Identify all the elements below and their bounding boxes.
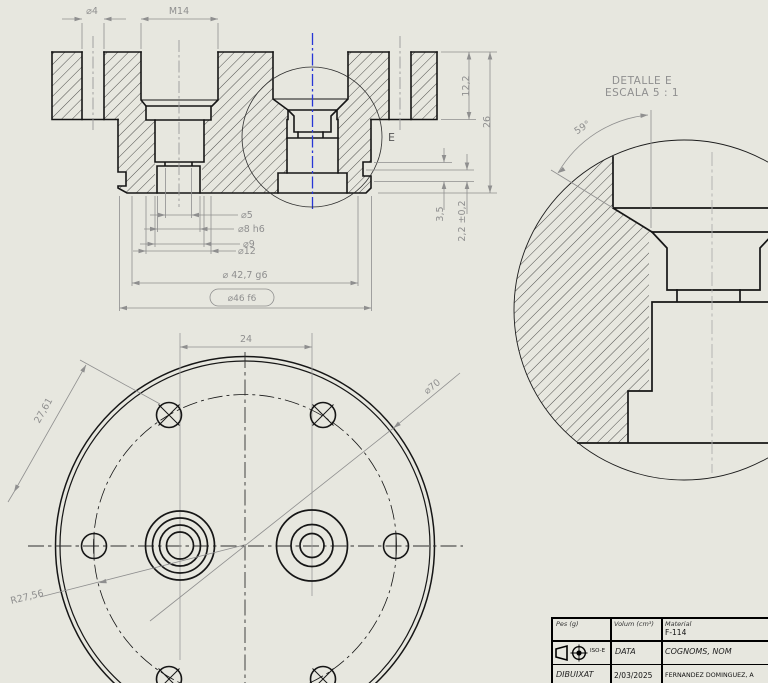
titleblock-col1-line: [610, 619, 612, 683]
dibuixat-label: DIBUIXAT: [556, 670, 609, 679]
dim-d4[interactable]: ⌀4: [86, 6, 98, 17]
pes-label: Pes (g): [556, 620, 608, 628]
volum-label: Volum (cm³): [614, 620, 659, 628]
dim-d8[interactable]: ⌀8 h6: [238, 224, 265, 235]
section-view: E ⌀4: [52, 6, 497, 311]
drawing-sheet: E ⌀4: [0, 0, 768, 683]
dim-d70[interactable]: ⌀70: [422, 377, 443, 397]
dim-26[interactable]: 26: [482, 116, 493, 128]
dim-angle-59[interactable]: 59°: [573, 119, 593, 137]
dim-d46[interactable]: ⌀46 f6: [228, 294, 257, 304]
dim-m14[interactable]: M14: [169, 6, 189, 17]
detail-view: 59° DETALLE E ESCALA 5 : 1: [505, 75, 768, 480]
drawing-svg: E ⌀4: [0, 0, 768, 683]
view-centerlines: [28, 352, 463, 683]
material-label: Material: [665, 620, 765, 628]
dibuixat-name: FERNANDEZ DOMÍNGUEZ, A: [665, 672, 768, 679]
dim-d5[interactable]: ⌀5: [241, 210, 253, 221]
boss-extension-lines: [180, 333, 312, 660]
title-block: Pes (g) Volum (cm³) Material F-114 ISO-E…: [551, 617, 768, 683]
detail-title: DETALLE E: [612, 75, 672, 87]
cognoms-label: COGNOMS, NOM: [665, 647, 768, 656]
dim-d12[interactable]: ⌀12: [238, 246, 256, 257]
bottom-dim-lines: [8, 347, 460, 621]
projection-symbol-icon: [554, 644, 590, 662]
dim-27-61[interactable]: 27,61: [32, 396, 55, 425]
dim-d427[interactable]: ⌀ 42,7 g6: [223, 270, 268, 281]
material-value: F-114: [665, 628, 765, 637]
dim-3-5[interactable]: 3,5: [435, 206, 446, 221]
titleblock-col2-line: [661, 619, 663, 683]
dim-r27-56[interactable]: R27,56: [9, 588, 44, 607]
projection-label: ISO-E: [590, 648, 610, 654]
section-hatch: [52, 52, 437, 193]
detail-scale: ESCALA 5 : 1: [605, 87, 679, 99]
data-label: DATA: [615, 647, 659, 656]
bottom-view: 24 ⌀70 27,61 R27,56: [8, 333, 463, 683]
dim-2-2[interactable]: 2,2 ±0,2: [457, 200, 468, 241]
bottom-dim-texts: 24 ⌀70 27,61 R27,56: [9, 334, 442, 607]
dim-24[interactable]: 24: [240, 334, 252, 345]
dibuixat-date: 2/03/2025: [614, 671, 660, 680]
dim-12-2[interactable]: 12,2: [461, 75, 472, 96]
detail-letter: E: [388, 131, 395, 144]
